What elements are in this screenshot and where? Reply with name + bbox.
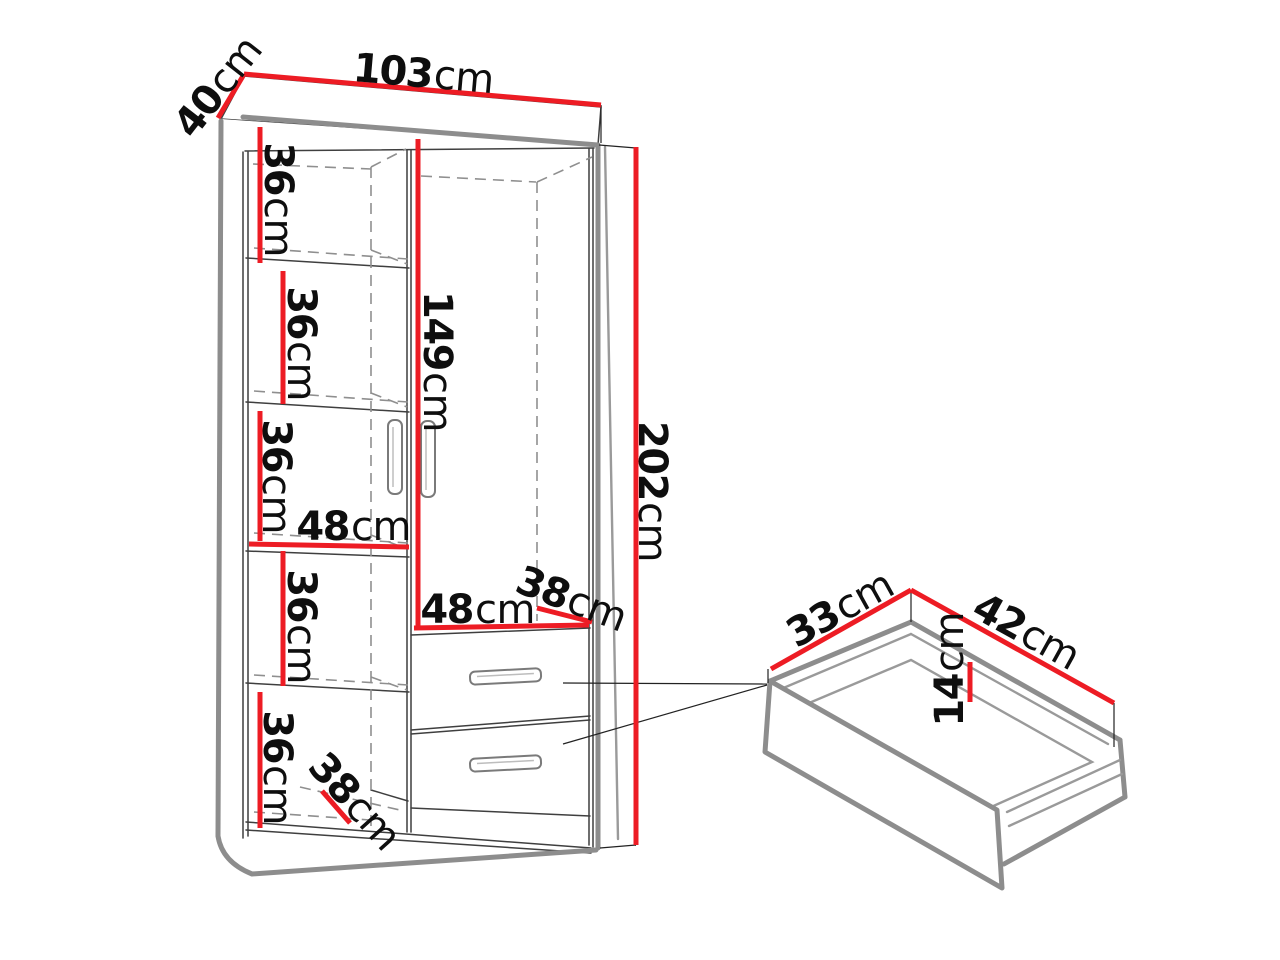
dim-shelf-4-value: 36: [278, 569, 324, 622]
dim-drawer-box-height-unit: cm: [927, 612, 973, 672]
dim-shelf-width-label: 48 cm: [296, 504, 411, 550]
dim-shelf-1-value: 36: [255, 142, 301, 195]
dim-height-value: 202: [629, 421, 675, 500]
dim-interior-height-unit: cm: [414, 372, 460, 432]
dim-shelf-4-label: 36 cm: [278, 569, 324, 684]
right-door-handle: [421, 421, 435, 497]
dim-shelf-width-unit: cm: [351, 504, 411, 550]
dim-shelf-1-label: 36 cm: [255, 142, 301, 257]
dim-shelf-5-label: 36 cm: [254, 710, 300, 825]
dim-shelf-2-label: 36 cm: [278, 286, 324, 401]
dim-shelf-2-value: 36: [278, 286, 324, 339]
dim-drawer-box-height-value: 14: [927, 674, 973, 727]
dim-shelf-3-unit: cm: [253, 474, 299, 534]
dim-shelf-4-unit: cm: [278, 624, 324, 684]
page: 103 cm 40 cm 202 cm 149 cm 36 cm 36 cm 3…: [0, 0, 1280, 960]
dim-shelf-2-unit: cm: [278, 341, 324, 401]
diagram-svg: 103 cm 40 cm 202 cm 149 cm 36 cm 36 cm 3…: [0, 0, 1280, 960]
dim-shelf-width-value: 48: [296, 504, 349, 550]
dim-height-unit: cm: [629, 502, 675, 562]
dim-height-label: 202 cm: [629, 421, 675, 562]
left-door-handle: [388, 420, 402, 494]
dim-shelf-5-unit: cm: [254, 765, 300, 825]
dim-drawer-box-height-label: 14 cm: [927, 612, 973, 727]
dim-width-unit: cm: [432, 52, 496, 103]
dim-shelf-3-value: 36: [253, 419, 299, 472]
dim-drawer-front-width-value: 48: [420, 587, 473, 633]
dim-shelf-1-unit: cm: [255, 197, 301, 257]
drawer-1-handle-group: [470, 668, 542, 685]
left-outer-edge: [218, 121, 221, 836]
dim-drawer-box-depth-label: 33 cm: [779, 561, 902, 657]
dim-shelf-3-label: 36 cm: [253, 419, 299, 534]
drawer-2-handle-group: [470, 755, 542, 772]
dim-width-value: 103: [351, 45, 434, 98]
dim-shelf-5-value: 36: [254, 710, 300, 763]
dim-interior-height-label: 149 cm: [414, 291, 460, 432]
dim-interior-height-value: 149: [414, 291, 460, 370]
